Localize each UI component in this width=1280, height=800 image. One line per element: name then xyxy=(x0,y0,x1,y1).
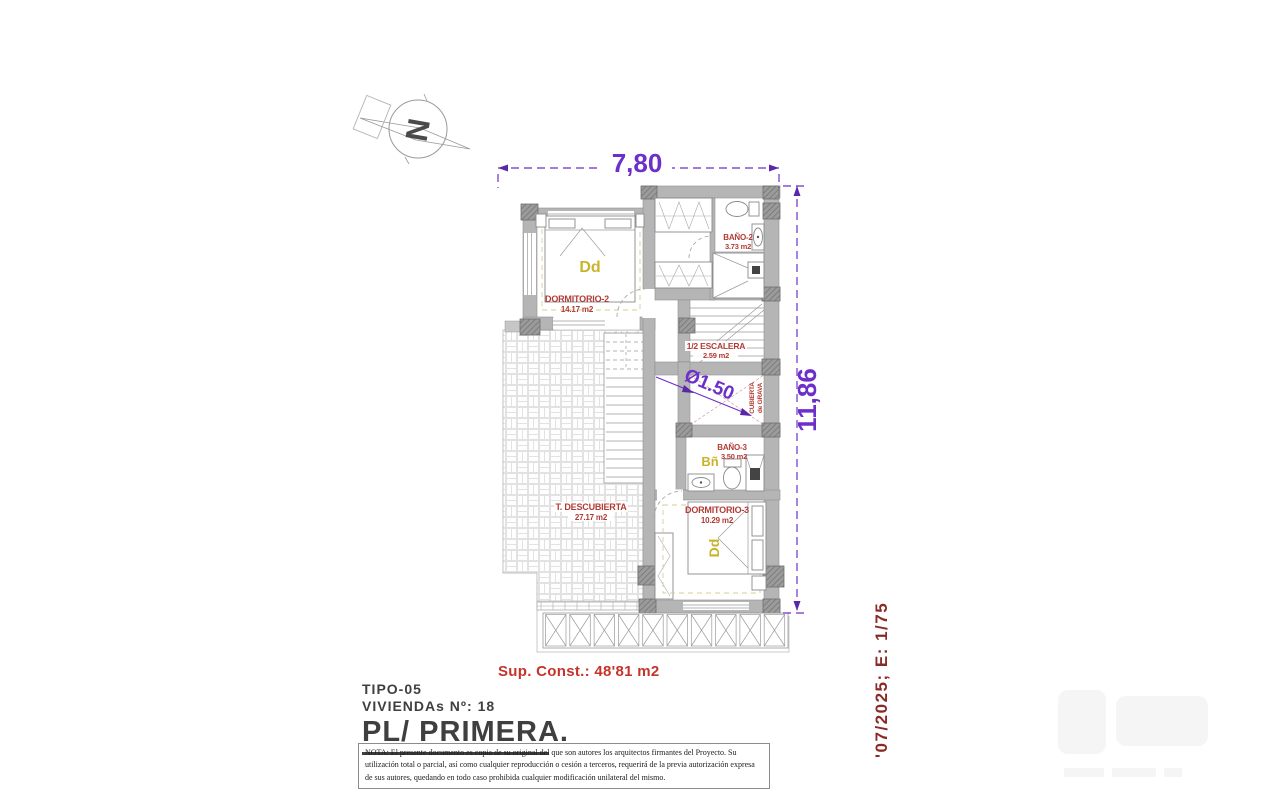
type-label: TIPO-05 xyxy=(362,681,569,697)
room-area-escalera: 2.59 m2 xyxy=(703,351,729,360)
dwellings-label: VIVIENDAs Nº: 18 xyxy=(362,698,569,714)
room-label-bano3: BAÑO-3 xyxy=(717,443,747,452)
sink-icon xyxy=(688,474,714,491)
width-dimension-label: 7,80 xyxy=(612,148,663,178)
dimension-width: 7,80 xyxy=(498,148,779,188)
room-label-escalera: 1/2 ESCALERA xyxy=(687,341,746,351)
room-tag-dormitorio3: Dd xyxy=(706,539,722,558)
closet-icon xyxy=(655,262,712,288)
svg-text:de GRAVA: de GRAVA xyxy=(757,382,764,413)
room-area-bano2: 3.73 m2 xyxy=(725,242,751,251)
room-tag-bano3: Bñ xyxy=(701,454,718,469)
pergola-louvers xyxy=(543,613,788,648)
legal-note: NOTA: El presente documento es copia de … xyxy=(358,743,770,789)
svg-text:CUBIERTA: CUBIERTA xyxy=(749,382,756,414)
closet-icon xyxy=(655,533,673,599)
toilet-icon xyxy=(724,459,742,489)
room-label-bano2: BAÑO-2 xyxy=(723,233,753,242)
room-area-terraza: 27.17 m2 xyxy=(575,513,608,522)
date-scale-label: '07/2025; E: 1/75 xyxy=(872,602,892,758)
dimension-height: 11,86 xyxy=(783,186,822,613)
room-label-dormitorio2: DORMITORIO-2 xyxy=(545,294,609,304)
terrace-railing xyxy=(537,602,643,610)
outdoor-stairs-icon xyxy=(604,333,648,483)
closet-icon xyxy=(655,198,712,232)
built-area-label: Sup. Const.: 48'81 m2 xyxy=(498,663,660,680)
room-area-bano3: 3.50 m2 xyxy=(721,452,747,461)
floor-plan-drawing: N xyxy=(0,0,1280,800)
shower-icon xyxy=(746,455,764,491)
north-arrow-icon: N xyxy=(353,94,470,164)
room-area-dormitorio3: 10.29 m2 xyxy=(701,516,734,525)
patio-label: CUBIERTA de GRAVA xyxy=(749,382,764,414)
room-label-dormitorio3: DORMITORIO-3 xyxy=(685,505,749,515)
north-letter: N xyxy=(398,116,436,144)
height-dimension-label: 11,86 xyxy=(792,368,822,432)
toilet-icon xyxy=(726,202,759,217)
room-label-terraza: T. DESCUBIERTA xyxy=(555,502,627,512)
shower-icon xyxy=(713,253,764,298)
drawing-sheet: N xyxy=(0,0,1280,800)
room-area-dormitorio2: 14.17 m2 xyxy=(561,305,594,314)
sink-icon xyxy=(752,224,764,250)
room-tag-dormitorio2: Dd xyxy=(579,259,600,276)
